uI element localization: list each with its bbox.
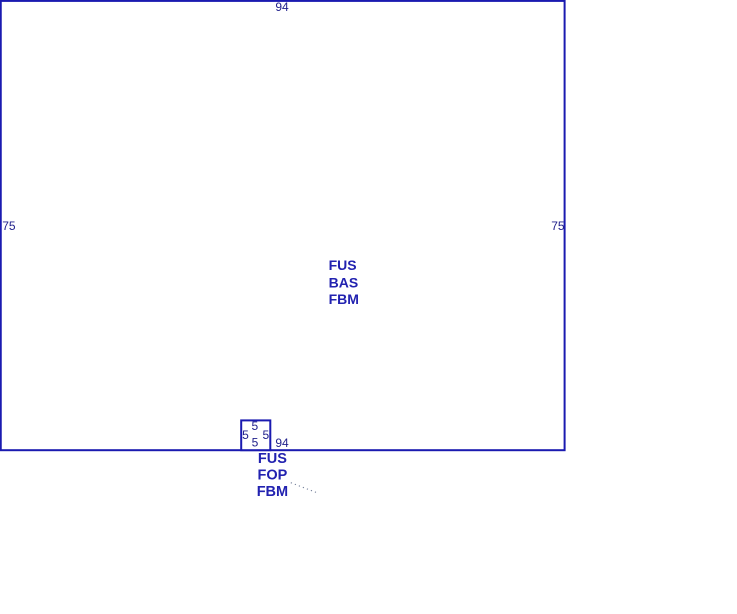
svg-text:75: 75 [2,219,16,233]
svg-text:FBM: FBM [257,484,288,500]
svg-text:FUS: FUS [329,257,357,273]
svg-text:94: 94 [275,436,289,450]
svg-text:5: 5 [242,428,249,442]
svg-text:5: 5 [252,436,259,450]
svg-text:BAS: BAS [329,275,359,291]
svg-text:94: 94 [275,0,289,14]
svg-text:FBM: FBM [329,291,359,307]
svg-text:FOP: FOP [257,468,287,484]
svg-text:5: 5 [251,419,258,433]
svg-text:FUS: FUS [258,451,287,467]
svg-text:5: 5 [262,428,269,442]
svg-text:75: 75 [551,219,565,233]
